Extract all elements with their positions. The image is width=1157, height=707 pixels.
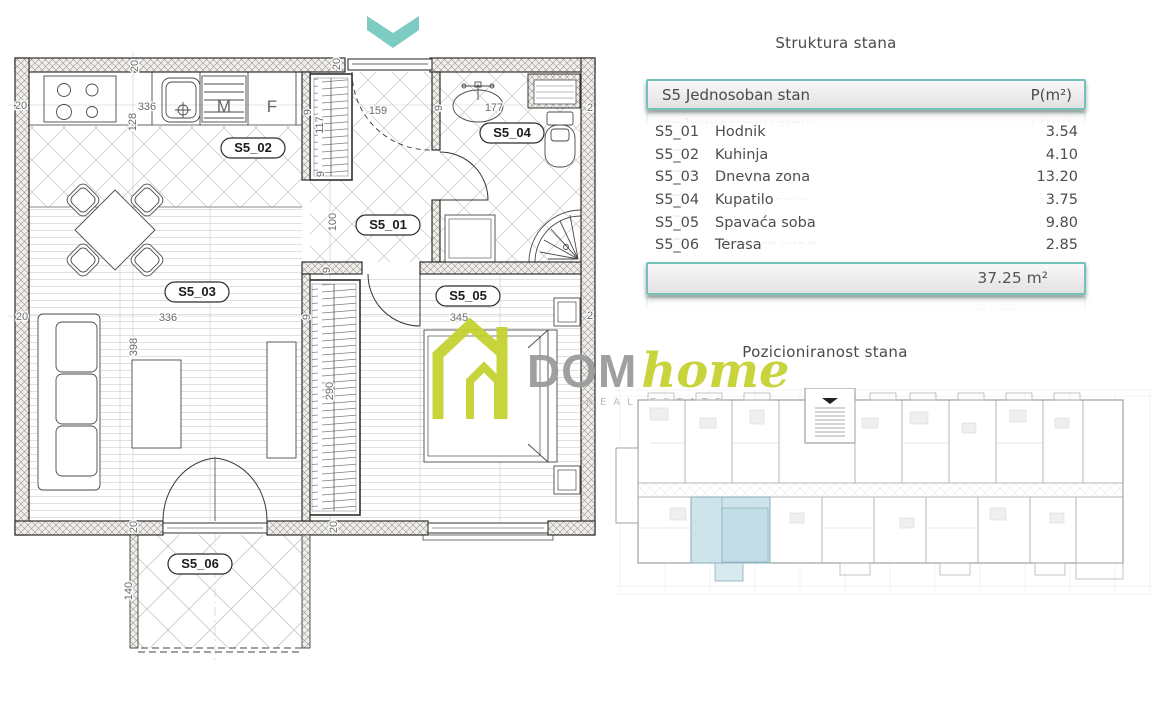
room-area: 13.20	[1036, 169, 1078, 185]
table-total: 37.25 m²	[646, 262, 1086, 295]
svg-text:128: 128	[127, 113, 139, 131]
room-code: S5_01	[655, 124, 715, 140]
coffee-table	[132, 360, 181, 448]
svg-text:336: 336	[159, 312, 177, 324]
room-area: 9.80	[1046, 215, 1078, 231]
table-row: S5_04 Kupatilo 3.75	[646, 189, 1086, 212]
room-label-s5-01: S5_01	[369, 217, 407, 232]
table-row: S5_06 Terasa 2.85	[646, 234, 1086, 257]
table-header-unit: P(m²)	[1031, 86, 1072, 104]
svg-text:117: 117	[314, 116, 326, 134]
svg-text:177: 177	[485, 102, 503, 114]
svg-text:2: 2	[587, 102, 593, 114]
structure-table: S5 Jednosoban stan P(m²) S5_01 Hodnik 3.…	[646, 79, 1086, 295]
room-name: Terasa	[715, 237, 1046, 253]
sofa	[38, 314, 100, 490]
room-area: 3.54	[1046, 124, 1078, 140]
table-row: S5_02 Kuhinja 4.10	[646, 144, 1086, 167]
svg-text:20: 20	[331, 58, 343, 70]
table-header: S5 Jednosoban stan P(m²)	[646, 79, 1086, 110]
room-label-s5-02: S5_02	[234, 140, 272, 155]
svg-text:20: 20	[328, 521, 340, 533]
svg-text:9: 9	[321, 267, 333, 273]
position-section-title: Pozicioniranost stana	[640, 343, 1010, 361]
svg-text:100: 100	[327, 213, 339, 231]
svg-text:20: 20	[128, 521, 140, 533]
svg-text:9: 9	[301, 314, 313, 320]
bathroom-shelf	[528, 74, 580, 108]
room-label-s5-05: S5_05	[449, 288, 487, 303]
toilet	[545, 112, 575, 167]
entrance-chevron-icon	[367, 16, 419, 48]
table-header-name: S5 Jednosoban stan	[662, 86, 810, 104]
svg-text:159: 159	[369, 105, 387, 117]
terrace-open-edge	[130, 648, 310, 652]
svg-text:20: 20	[16, 311, 28, 323]
svg-text:20: 20	[15, 100, 27, 112]
highlighted-unit-s5	[691, 497, 770, 581]
svg-text:398: 398	[128, 338, 140, 356]
room-code: S5_04	[655, 192, 715, 208]
dining-table	[65, 182, 166, 279]
tv-bench	[267, 342, 296, 458]
building-overview	[610, 388, 1157, 606]
svg-text:336: 336	[138, 101, 156, 113]
svg-text:9: 9	[302, 109, 314, 115]
room-code: S5_02	[655, 147, 715, 163]
total-area: 37.25 m²	[977, 269, 1048, 287]
room-code: S5_03	[655, 169, 715, 185]
room-label-s5-06: S5_06	[181, 556, 219, 571]
washer-label: M	[217, 97, 231, 116]
room-code: S5_05	[655, 215, 715, 231]
room-code: S5_06	[655, 237, 715, 253]
room-area: 2.85	[1046, 237, 1078, 253]
fridge-label: F	[267, 97, 277, 116]
room-label-s5-03: S5_03	[178, 284, 216, 299]
structure-table-title: Struktura stana	[646, 34, 1026, 52]
room-area: 3.75	[1046, 192, 1078, 208]
table-row: S5_05 Spavaća soba 9.80	[646, 211, 1086, 234]
room-name: Dnevna zona	[715, 169, 1036, 185]
room-name: Hodnik	[715, 124, 1046, 140]
corridor	[638, 483, 1123, 497]
svg-text:9: 9	[315, 171, 327, 177]
table-row: S5_01 Hodnik 3.54	[646, 121, 1086, 144]
house-icon	[424, 305, 524, 423]
room-name: Spavaća soba	[715, 215, 1046, 231]
svg-text:9: 9	[433, 105, 445, 111]
svg-text:290: 290	[324, 382, 336, 400]
table-row: S5_03 Dnevna zona 13.20	[646, 166, 1086, 189]
room-area: 4.10	[1046, 147, 1078, 163]
svg-text:140: 140	[123, 582, 135, 600]
room-label-s5-04: S5_04	[493, 125, 531, 140]
svg-text:20: 20	[129, 60, 141, 72]
room-name: Kupatilo	[715, 192, 1046, 208]
shower-tray	[445, 215, 495, 262]
table-rows: S5_01 Hodnik 3.54 S5_02 Kuhinja 4.10 S5_…	[646, 121, 1086, 257]
room-name: Kuhinja	[715, 147, 1046, 163]
bedroom-window	[423, 523, 553, 540]
